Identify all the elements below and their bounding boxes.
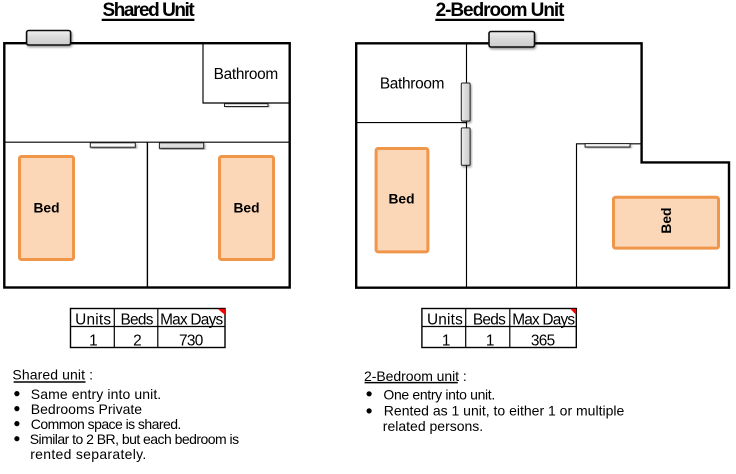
svg-text:Rented as 1 unit, to either 1: Rented as 1 unit, to either 1 or multipl… <box>384 403 625 419</box>
svg-text:Shared unit :: Shared unit : <box>12 366 93 382</box>
svg-text:Beds: Beds <box>473 312 506 329</box>
svg-text:Units: Units <box>75 312 111 329</box>
svg-text:1: 1 <box>442 332 451 349</box>
svg-text:1: 1 <box>486 332 495 349</box>
svg-text:Bed: Bed <box>659 208 674 234</box>
svg-text:rented separately.: rented separately. <box>30 446 146 462</box>
svg-text:Common space is shared.: Common space is shared. <box>31 416 181 432</box>
svg-text:related persons.: related persons. <box>383 418 483 434</box>
svg-text:2: 2 <box>133 332 142 349</box>
svg-text:Beds: Beds <box>120 312 153 329</box>
svg-text:1: 1 <box>89 332 98 349</box>
svg-text:365: 365 <box>531 332 555 349</box>
svg-text:Bed: Bed <box>233 201 259 216</box>
svg-text:Max Days: Max Days <box>512 312 575 329</box>
svg-text:Shared Unit: Shared Unit <box>103 0 196 21</box>
svg-text:One entry into unit.: One entry into unit. <box>383 387 495 403</box>
svg-text:730: 730 <box>179 332 203 349</box>
svg-text:Max Days: Max Days <box>160 312 223 329</box>
svg-text:Bed: Bed <box>388 192 414 207</box>
svg-text:Same entry into unit.: Same entry into unit. <box>31 386 162 402</box>
svg-text:Bathroom: Bathroom <box>380 75 444 92</box>
svg-text:2-Bedroom unit :: 2-Bedroom unit : <box>364 368 467 384</box>
svg-text:2-Bedroom Unit: 2-Bedroom Unit <box>436 0 566 21</box>
svg-text:Bed: Bed <box>33 201 59 216</box>
svg-text:Bedrooms Private: Bedrooms Private <box>31 401 142 417</box>
svg-text:Units: Units <box>427 312 463 329</box>
svg-text:Similar to 2 BR, but each bedr: Similar to 2 BR, but each bedroom is <box>30 431 239 447</box>
svg-text:Bathroom: Bathroom <box>214 66 278 83</box>
